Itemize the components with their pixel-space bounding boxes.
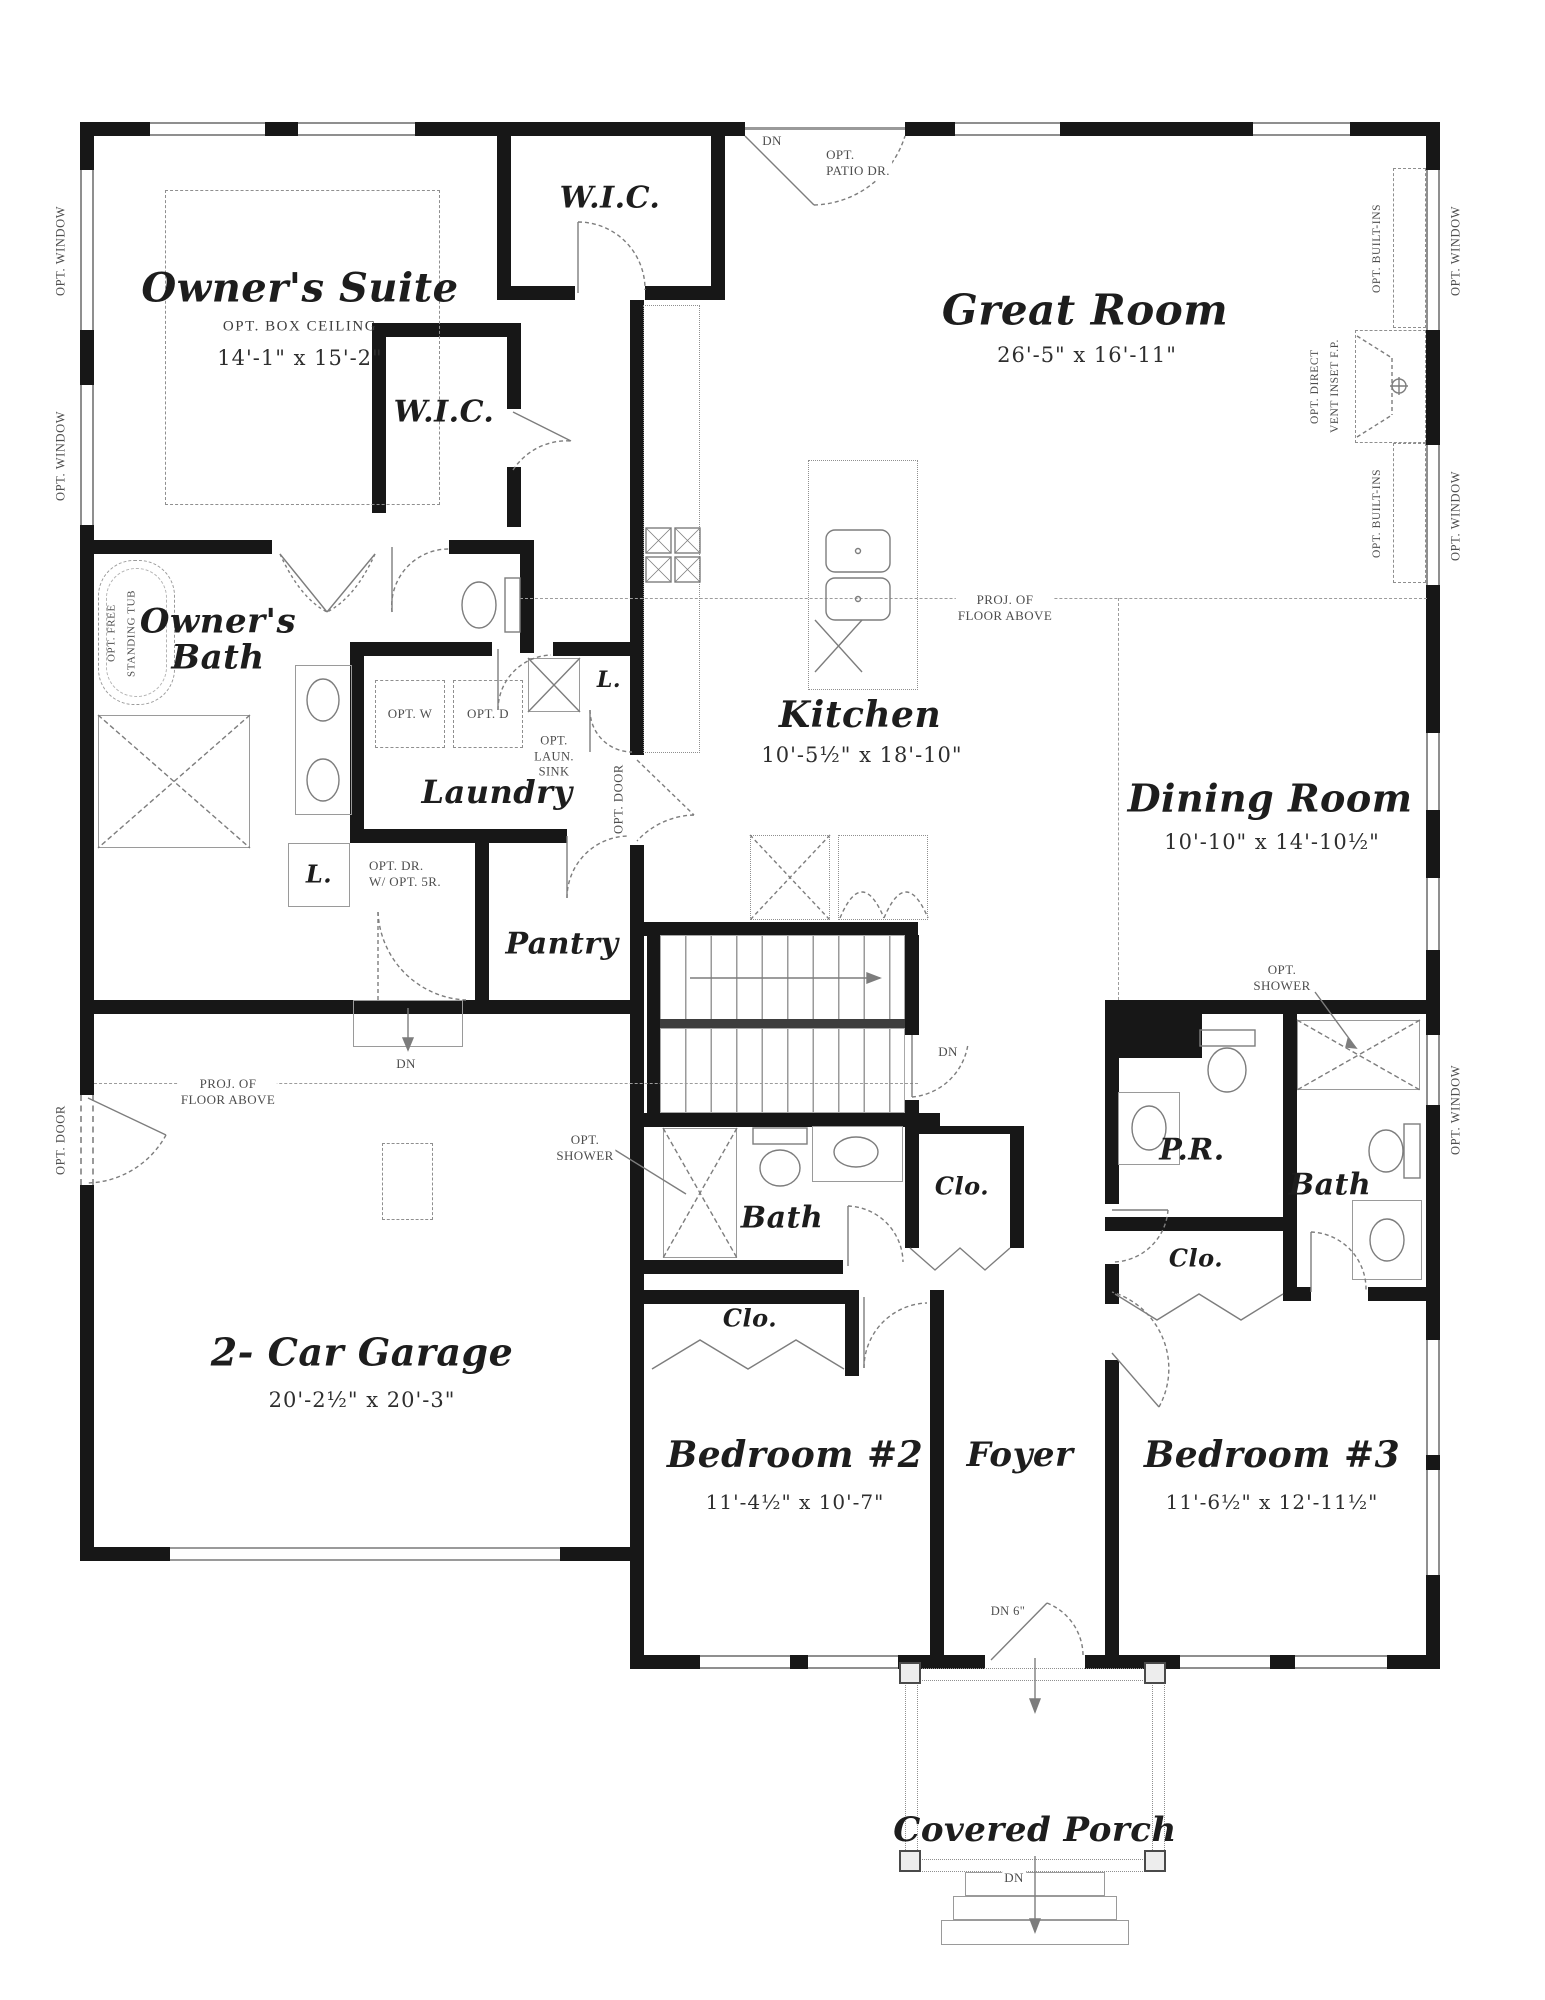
opt-shower-left-line2: SHOWER xyxy=(556,1148,613,1164)
great-room-dims: 26'-5" x 16'-11" xyxy=(997,343,1177,367)
opt-window-label-right-3: OPT. WINDOW xyxy=(1447,1030,1465,1190)
dn-label-mud: DN xyxy=(394,1056,418,1072)
room-label-bedroom3: Bedroom #3 xyxy=(1144,1434,1400,1476)
opt-door-riser-label: OPT. DR. W/ OPT. 5R. xyxy=(367,858,443,891)
room-label-owners-suite: Owner's Suite xyxy=(141,265,458,312)
opt-fireplace-label-line1: OPT. DIRECT xyxy=(1306,330,1324,443)
opt-sink-line3: SINK xyxy=(534,765,574,781)
opt-shower-left-line1: OPT. xyxy=(556,1132,613,1148)
dn-label-stairs: DN xyxy=(936,1044,960,1060)
room-label-pantry: Pantry xyxy=(505,927,618,962)
room-label-great-room: Great Room xyxy=(942,286,1228,335)
room-label-foyer: Foyer xyxy=(967,1435,1074,1475)
bedroom2-dims: 11'-4½" x 10'-7" xyxy=(706,1490,885,1514)
dn-label-porch: DN xyxy=(1002,1870,1026,1886)
opt-tub-label-line1: OPT. FREE xyxy=(104,572,119,694)
proj-line1: PROJ. OF xyxy=(958,592,1052,608)
opt-dr-line1: OPT. DR. xyxy=(369,858,441,874)
owners-suite-note: OPT. BOX CEILING xyxy=(223,319,377,336)
opt-door-label-left: OPT. DOOR xyxy=(52,1093,70,1188)
room-label-owners-bath: Owner's Bath xyxy=(138,604,298,675)
proj-garage-line1: PROJ. OF xyxy=(181,1076,275,1092)
room-label-garage: 2- Car Garage xyxy=(211,1330,514,1375)
proj-garage-line2: FLOOR ABOVE xyxy=(181,1092,275,1108)
opt-shower-right-line1: OPT. xyxy=(1253,962,1310,978)
opt-fireplace-label-line2: VENT INSET F.P. xyxy=(1326,330,1344,443)
opt-patio-line2: PATIO DR. xyxy=(826,163,890,179)
floor-plan: Owner's Suite OPT. BOX CEILING 14'-1" x … xyxy=(0,0,1545,2000)
proj-line2: FLOOR ABOVE xyxy=(958,608,1052,624)
opt-sink-line1: OPT. xyxy=(534,734,574,750)
opt-tub-label-line2: STANDING TUB xyxy=(124,572,139,694)
room-label-wic-mid: W.I.C. xyxy=(394,395,495,430)
dn6-label-front-door: DN 6" xyxy=(989,1604,1028,1620)
kitchen-dims: 10'-5½" x 18'-10" xyxy=(761,743,962,767)
closet-label-bed3: Clo. xyxy=(1169,1244,1223,1273)
dn-label-patio: DN xyxy=(760,133,784,149)
bedroom3-dims: 11'-6½" x 12'-11½" xyxy=(1166,1490,1379,1514)
closet-label-bed2: Clo. xyxy=(723,1304,777,1333)
opt-laundry-sink-label: OPT. LAUN. SINK xyxy=(532,734,576,781)
opt-shower-label-left: OPT. SHOWER xyxy=(554,1132,615,1165)
dining-dims: 10'-10" x 14'-10½" xyxy=(1164,830,1380,854)
opt-window-label-right-1: OPT. WINDOW xyxy=(1447,168,1465,333)
opt-patio-door-label: OPT. PATIO DR. xyxy=(824,147,892,180)
closet-label-hall: Clo. xyxy=(935,1172,989,1201)
opt-builtins-label-top: OPT. BUILT-INS xyxy=(1368,168,1386,328)
opt-washer-label: OPT. W xyxy=(386,706,435,722)
opt-dr-line2: W/ OPT. 5R. xyxy=(369,874,441,890)
opt-shower-right-line2: SHOWER xyxy=(1253,978,1310,994)
room-label-bedroom2: Bedroom #2 xyxy=(667,1434,923,1476)
room-label-powder: P.R. xyxy=(1159,1133,1224,1168)
opt-dryer-label: OPT. D xyxy=(465,706,511,722)
proj-floor-above-label-right: PROJ. OF FLOOR ABOVE xyxy=(956,592,1054,625)
room-label-porch: Covered Porch xyxy=(893,1810,1176,1850)
opt-patio-line1: OPT. xyxy=(826,147,890,163)
linen-label-mud: L. xyxy=(306,860,332,889)
opt-window-label-left-2: OPT. WINDOW xyxy=(52,383,70,528)
room-label-dining: Dining Room xyxy=(1128,776,1413,821)
garage-dims: 20'-2½" x 20'-3" xyxy=(269,1388,456,1412)
linen-label-laundry: L. xyxy=(597,667,621,693)
room-label-bath-right: Bath xyxy=(1289,1168,1371,1203)
proj-floor-above-label-garage: PROJ. OF FLOOR ABOVE xyxy=(179,1076,277,1109)
room-label-bath-main: Bath xyxy=(741,1201,823,1236)
opt-sink-line2: LAUN. xyxy=(534,749,574,765)
opt-shower-label-right: OPT. SHOWER xyxy=(1251,962,1312,995)
opt-door-label-kitchen: OPT. DOOR xyxy=(610,753,628,845)
opt-builtins-label-bottom: OPT. BUILT-INS xyxy=(1368,443,1386,583)
opt-window-label-right-2: OPT. WINDOW xyxy=(1447,443,1465,588)
opt-window-label-left-1: OPT. WINDOW xyxy=(52,168,70,333)
room-label-wic-top: W.I.C. xyxy=(560,181,661,216)
owners-suite-dims: 14'-1" x 15'-2" xyxy=(217,346,382,370)
room-label-kitchen: Kitchen xyxy=(779,694,941,736)
